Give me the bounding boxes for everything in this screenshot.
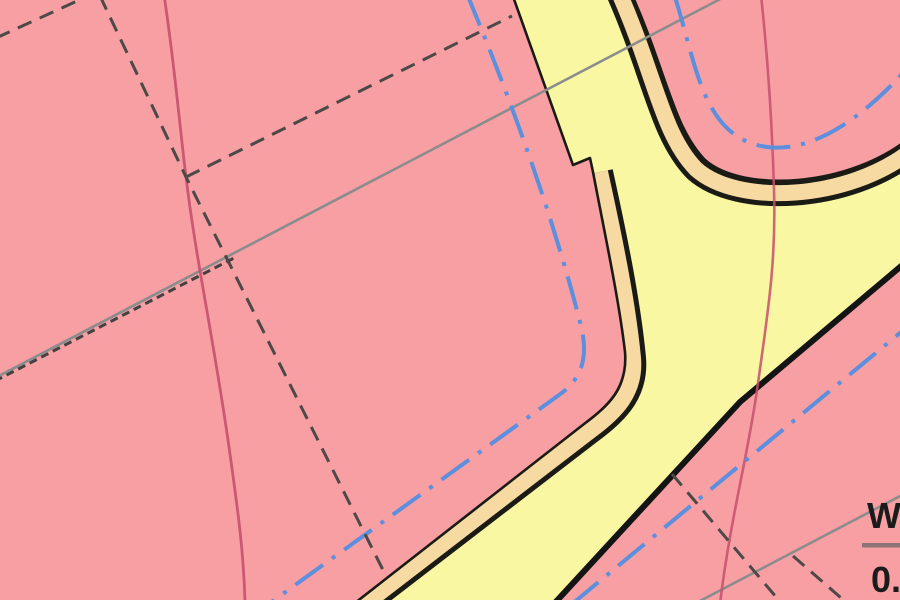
map-viewport[interactable]: W 0. xyxy=(0,0,900,600)
zoning-ratio-denominator: 0. xyxy=(871,559,900,600)
zoning-ratio-numerator: W xyxy=(867,495,900,536)
zoning-ratio-bar xyxy=(862,543,900,548)
zoning-map-canvas[interactable]: W 0. xyxy=(0,0,900,600)
